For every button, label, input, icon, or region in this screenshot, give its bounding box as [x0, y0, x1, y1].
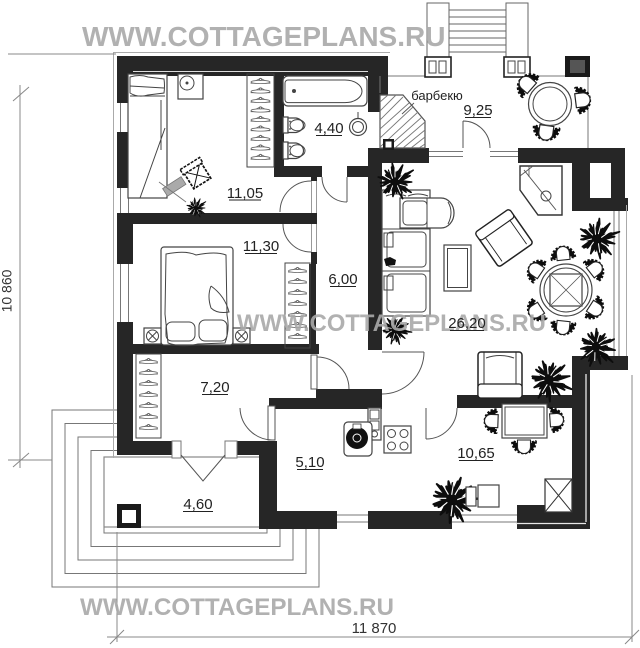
svg-text:26,20: 26,20: [448, 315, 486, 332]
svg-text:барбекю: барбекю: [411, 88, 463, 103]
svg-text:WWW.COTTAGEPLANS.RU: WWW.COTTAGEPLANS.RU: [82, 21, 445, 52]
svg-text:WWW.COTTAGEPLANS.RU: WWW.COTTAGEPLANS.RU: [237, 310, 546, 337]
svg-text:11,05: 11,05: [227, 185, 263, 202]
svg-text:4,40: 4,40: [314, 120, 343, 137]
svg-text:9,25: 9,25: [463, 102, 492, 119]
svg-text:7,20: 7,20: [200, 379, 229, 396]
svg-text:10,65: 10,65: [457, 445, 495, 462]
svg-text:11 870: 11 870: [352, 620, 397, 637]
svg-text:11,30: 11,30: [243, 238, 279, 255]
svg-text:5,10: 5,10: [295, 454, 324, 471]
svg-text:WWW.COTTAGEPLANS.RU: WWW.COTTAGEPLANS.RU: [80, 594, 394, 621]
svg-text:6,00: 6,00: [328, 271, 357, 288]
svg-text:4,60: 4,60: [183, 496, 212, 513]
svg-text:10 860: 10 860: [0, 269, 15, 312]
